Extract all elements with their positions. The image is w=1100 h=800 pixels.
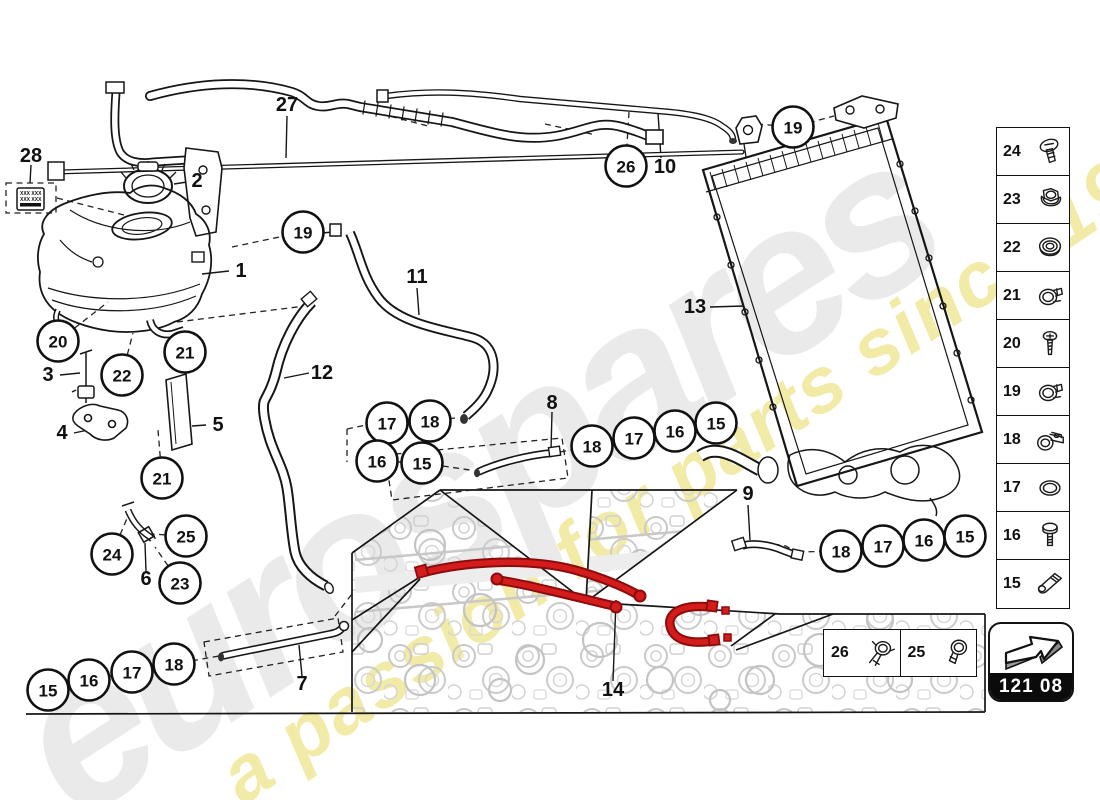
callout-18: 18 (410, 401, 451, 442)
pan-head-screw-icon (1033, 135, 1067, 169)
part-label-14: 14 (602, 679, 625, 701)
callout-18: 18 (821, 531, 862, 572)
svg-text:15: 15 (707, 415, 726, 434)
radiator-drawing (703, 96, 982, 486)
parts-column-item-22: 22 (997, 224, 1069, 272)
part-label-11: 11 (406, 266, 427, 288)
parts-column-item-20: 20 (997, 320, 1069, 368)
svg-text:21: 21 (176, 344, 195, 363)
part-number: 16 (1003, 527, 1021, 545)
clamp-box-item-25: 25 (901, 630, 977, 676)
svg-text:25: 25 (177, 528, 196, 547)
bolt-icon (1033, 519, 1067, 553)
forward-arrow-icon (990, 624, 1072, 673)
part-label-1: 1 (235, 260, 246, 282)
svg-text:18: 18 (832, 543, 851, 562)
callout-17: 17 (367, 403, 408, 444)
hose-9 (732, 537, 804, 560)
svg-text:21: 21 (153, 470, 172, 489)
svg-text:26: 26 (617, 158, 636, 177)
svg-text:15: 15 (39, 682, 58, 701)
o-ring-icon (1033, 471, 1067, 505)
type-label-sticker: XXX XXX XXX XXX (17, 188, 44, 210)
part-number: 22 (1003, 239, 1021, 257)
seal-grommet-icon (1033, 231, 1067, 265)
parts-legend-column: 24232221201918171615 (996, 127, 1070, 609)
part-number: 21 (1003, 287, 1021, 305)
callout-17: 17 (112, 652, 153, 693)
part-label-28: 28 (20, 145, 42, 167)
hose-8 (474, 446, 561, 477)
svg-text:18: 18 (421, 413, 440, 432)
part-label-7: 7 (296, 673, 307, 695)
part-number: 26 (831, 644, 849, 662)
part-label-27: 27 (276, 94, 298, 116)
part-number: 15 (1003, 575, 1021, 593)
part-label-10: 10 (654, 156, 676, 178)
screw-icon (1033, 327, 1067, 361)
svg-text:18: 18 (583, 438, 602, 457)
flange-nut-icon (1033, 183, 1067, 217)
elbow-pipe-6-drawing (122, 502, 154, 542)
spring-clamp-icon (940, 636, 974, 670)
callout-16: 16 (357, 441, 398, 482)
svg-text:17: 17 (874, 538, 893, 557)
support-bracket-drawing (73, 404, 128, 440)
part-number: 18 (1003, 431, 1021, 449)
thermostat-housing-drawing (700, 445, 960, 516)
parts-column-item-15: 15 (997, 560, 1069, 608)
hose-11 (330, 224, 494, 424)
callout-16: 16 (655, 411, 696, 452)
part-label-13: 13 (684, 296, 706, 318)
svg-text:16: 16 (666, 423, 685, 442)
clamp-box-item-26: 26 (824, 630, 901, 676)
parts-column-item-16: 16 (997, 512, 1069, 560)
callout-20: 20 (38, 321, 79, 362)
technical-diagram: XXX XXX XXX XXX (0, 0, 1100, 800)
callout-17: 17 (614, 418, 655, 459)
svg-text:15: 15 (956, 528, 975, 547)
part-label-8: 8 (546, 392, 557, 414)
callout-18: 18 (154, 644, 195, 685)
callout-15: 15 (945, 516, 986, 557)
callout-17: 17 (863, 526, 904, 567)
pipe-7 (218, 622, 349, 662)
hose-12 (263, 291, 334, 594)
parts-column-item-21: 21 (997, 272, 1069, 320)
callout-15: 15 (402, 443, 443, 484)
svg-text:19: 19 (784, 119, 803, 138)
part-label-3: 3 (42, 364, 53, 386)
union-fitting-icon (1033, 567, 1067, 601)
svg-text:15: 15 (413, 455, 432, 474)
parts-column-item-23: 23 (997, 176, 1069, 224)
part-number: 23 (1003, 191, 1021, 209)
callout-23: 23 (160, 563, 201, 604)
clamp-parts-box: 2625 (823, 629, 977, 677)
temp-sensor-drawing (72, 350, 94, 403)
part-number: 20 (1003, 335, 1021, 353)
page-code: 121 08 (990, 673, 1072, 700)
part-label-5: 5 (212, 414, 223, 436)
callout-21: 21 (165, 332, 206, 373)
callout-16: 16 (904, 520, 945, 561)
parts-column-item-24: 24 (997, 128, 1069, 176)
callout-15: 15 (696, 403, 737, 444)
callout-26: 26 (606, 146, 647, 187)
callout-22: 22 (102, 355, 143, 396)
part-label-2: 2 (191, 170, 202, 192)
parts-diagram-page: eurospares a passion for parts since 198… (0, 0, 1100, 800)
clamp-pliers-icon (864, 636, 898, 670)
svg-text:17: 17 (378, 415, 397, 434)
svg-text:19: 19 (294, 224, 313, 243)
expansion-tank-drawing (38, 186, 211, 335)
svg-text:22: 22 (113, 367, 132, 386)
clip-clamp-icon (1033, 423, 1067, 457)
svg-text:16: 16 (80, 672, 99, 691)
svg-text:24: 24 (103, 546, 122, 565)
svg-text:XXX XXX: XXX XXX (20, 197, 42, 203)
parts-column-item-17: 17 (997, 464, 1069, 512)
svg-text:20: 20 (49, 333, 68, 352)
hose-clamp-icon (1033, 375, 1067, 409)
engine-block-view (352, 470, 992, 720)
heat-shield-strip-drawing (166, 374, 192, 450)
callout-18: 18 (572, 426, 613, 467)
parts-column-item-18: 18 (997, 416, 1069, 464)
svg-text:16: 16 (368, 453, 387, 472)
part-label-9: 9 (742, 483, 753, 505)
part-number: 24 (1003, 143, 1021, 161)
parts-column-item-19: 19 (997, 368, 1069, 416)
callout-24: 24 (92, 534, 133, 575)
callout-19: 19 (773, 107, 814, 148)
callout-19: 19 (283, 212, 324, 253)
callout-21: 21 (142, 458, 183, 499)
part-label-6: 6 (140, 568, 151, 590)
svg-text:17: 17 (123, 664, 142, 683)
svg-text:16: 16 (915, 532, 934, 551)
part-label-12: 12 (311, 362, 333, 384)
section-badge: 121 08 (988, 622, 1074, 702)
part-number: 17 (1003, 479, 1021, 497)
hose-clamp-icon (1033, 279, 1067, 313)
svg-text:18: 18 (165, 656, 184, 675)
callout-25: 25 (166, 516, 207, 557)
part-number: 25 (908, 644, 926, 662)
part-label-4: 4 (56, 422, 68, 444)
callout-16: 16 (69, 660, 110, 701)
part-number: 19 (1003, 383, 1021, 401)
svg-text:23: 23 (171, 575, 190, 594)
svg-text:17: 17 (625, 430, 644, 449)
callout-15: 15 (28, 670, 69, 711)
